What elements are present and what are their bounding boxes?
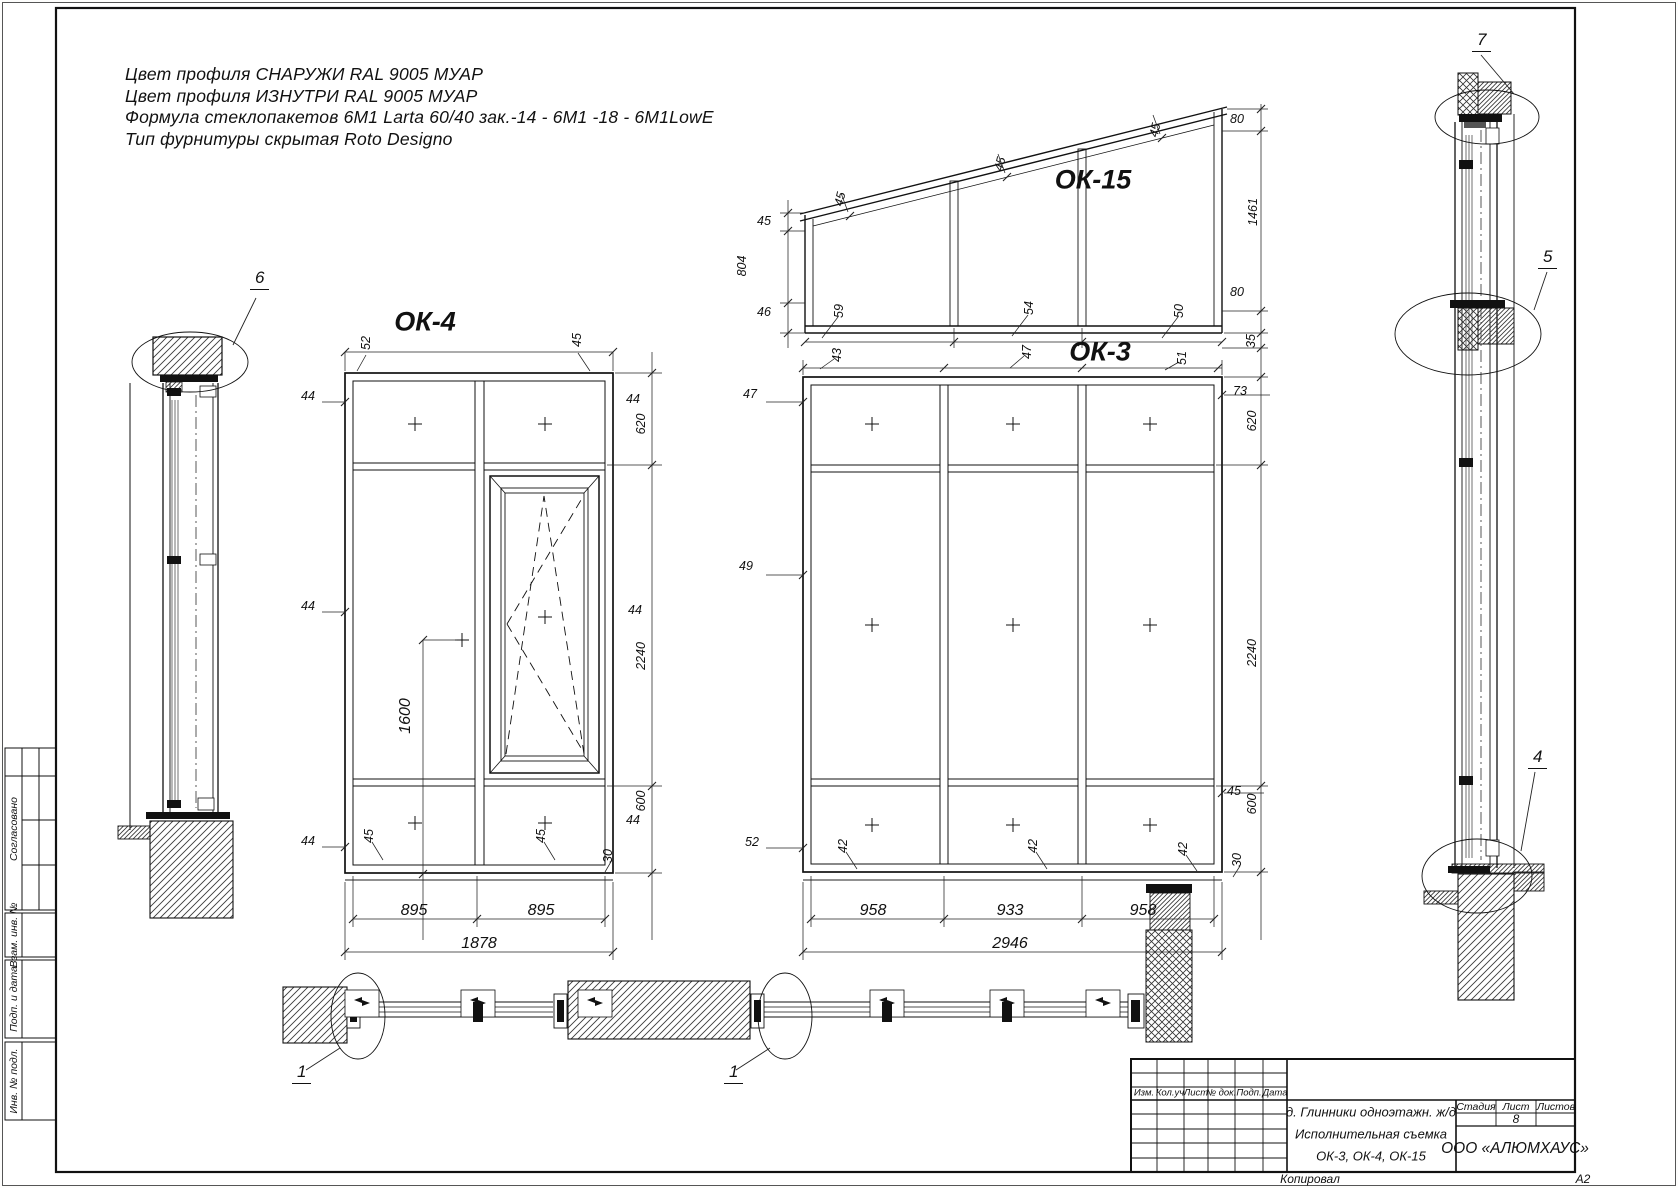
spec-line: Формула стеклопакетов 6М1 Larta 60/40 за… xyxy=(125,107,714,129)
dim-label: 933 xyxy=(997,902,1024,920)
callout-6: 6 xyxy=(250,268,269,290)
ok15-title: ОК-15 xyxy=(1055,165,1132,196)
margin-label-agreed: Согласовано xyxy=(8,797,20,861)
dim-label: 46 xyxy=(757,305,771,319)
dim-label: 44 xyxy=(301,389,315,403)
dim-label: 895 xyxy=(528,902,555,920)
ok3-title: ОК-3 xyxy=(1069,337,1131,368)
paper-edge xyxy=(3,3,1676,1186)
spec-line: Тип фурнитуры скрытая Roto Designo xyxy=(125,129,714,151)
stamp-col-izm: Изм. xyxy=(1134,1088,1154,1099)
spec-line: Цвет профиля СНАРУЖИ RAL 9005 МУАР xyxy=(125,64,714,86)
dim-label: 73 xyxy=(1233,384,1247,398)
dim-label: 804 xyxy=(735,256,749,277)
dim-label: 620 xyxy=(1245,411,1259,432)
margin-label-podp: Подп. и дата xyxy=(8,966,20,1032)
dim-label: 45 xyxy=(1227,784,1241,798)
dim-label: 45 xyxy=(534,829,548,843)
stamp-col-podp: Подп. xyxy=(1236,1088,1261,1099)
dim-label: 44 xyxy=(628,603,642,617)
dim-label: 958 xyxy=(1130,902,1157,920)
dim-label: 30 xyxy=(1230,853,1244,867)
dim-label: 42 xyxy=(1026,839,1040,853)
dim-label: 30 xyxy=(601,849,615,863)
dim-label: 35 xyxy=(1244,334,1258,348)
dim-label: 600 xyxy=(1245,794,1259,815)
callout-5: 5 xyxy=(1538,247,1557,269)
dim-label: 45 xyxy=(362,829,376,843)
stamp-company: ООО «АЛЮМХАУС» xyxy=(1441,1140,1589,1158)
dim-label: 80 xyxy=(1230,285,1244,299)
dim-label: 2240 xyxy=(1245,639,1259,667)
dim-label: 47 xyxy=(743,387,757,401)
dim-label: 54 xyxy=(1022,301,1036,315)
callout-7: 7 xyxy=(1472,30,1491,52)
dim-label: 44 xyxy=(626,392,640,406)
stamp-stage-label: Стадия xyxy=(1456,1101,1495,1113)
stamp-sheets-label: Листов xyxy=(1537,1101,1575,1113)
spec-line: Цвет профиля ИЗНУТРИ RAL 9005 МУАР xyxy=(125,86,714,108)
dim-label: 59 xyxy=(832,304,846,318)
drawing-linework xyxy=(0,0,1678,1188)
margin-label-inv: Инв. № подл. xyxy=(8,1048,20,1113)
margin-label-vzam: Взам. инв. № xyxy=(8,903,20,968)
drawing-sheet: Цвет профиля СНАРУЖИ RAL 9005 МУАР Цвет … xyxy=(0,0,1678,1188)
ok4-title: ОК-4 xyxy=(394,307,456,338)
dim-label: 52 xyxy=(745,835,759,849)
dim-label: 43 xyxy=(830,348,844,362)
footer-format: А2 xyxy=(1576,1172,1591,1186)
dim-label: 45 xyxy=(570,333,584,347)
stamp-col-list: Лист xyxy=(1184,1088,1208,1099)
dim-label: 958 xyxy=(860,902,887,920)
dim-label: 42 xyxy=(836,839,850,853)
stamp-sheet-number: 8 xyxy=(1513,1112,1520,1126)
dim-label: 2946 xyxy=(992,935,1028,953)
dim-label: 44 xyxy=(626,813,640,827)
callout-1: 1 xyxy=(724,1062,743,1084)
dim-label: 80 xyxy=(1230,112,1244,126)
footer-copied: Копировал xyxy=(1280,1172,1340,1186)
dim-label: 2240 xyxy=(634,642,648,670)
stamp-col-data: Дата xyxy=(1262,1088,1287,1099)
dim-label: 52 xyxy=(359,336,373,350)
stamp-items: ОК-3, ОК-4, ОК-15 xyxy=(1316,1149,1426,1164)
dim-label: 1461 xyxy=(1246,198,1260,226)
dim-label: 50 xyxy=(1172,304,1186,318)
callout-1: 1 xyxy=(292,1062,311,1084)
dim-label: 1878 xyxy=(461,935,497,953)
stamp-col-koluch: Кол.уч xyxy=(1156,1088,1184,1099)
callout-4: 4 xyxy=(1528,747,1547,769)
dim-label: 42 xyxy=(1176,842,1190,856)
dim-label: 620 xyxy=(634,414,648,435)
stamp-col-ndok: № док. xyxy=(1206,1088,1237,1099)
dim-label: 44 xyxy=(301,599,315,613)
dim-label: 600 xyxy=(634,791,648,812)
stamp-project: д. Глинники одноэтажн. ж/д xyxy=(1286,1105,1456,1120)
dim-label: 44 xyxy=(301,834,315,848)
stamp-survey: Исполнительная съемка xyxy=(1295,1127,1447,1142)
dim-label: 51 xyxy=(1175,351,1189,365)
dim-label: 895 xyxy=(401,902,428,920)
dim-label: 49 xyxy=(739,559,753,573)
dim-label: 45 xyxy=(757,214,771,228)
dim-label-handle-height: 1600 xyxy=(397,698,415,734)
spec-notes: Цвет профиля СНАРУЖИ RAL 9005 МУАР Цвет … xyxy=(125,64,714,150)
dim-label: 47 xyxy=(1020,345,1034,359)
